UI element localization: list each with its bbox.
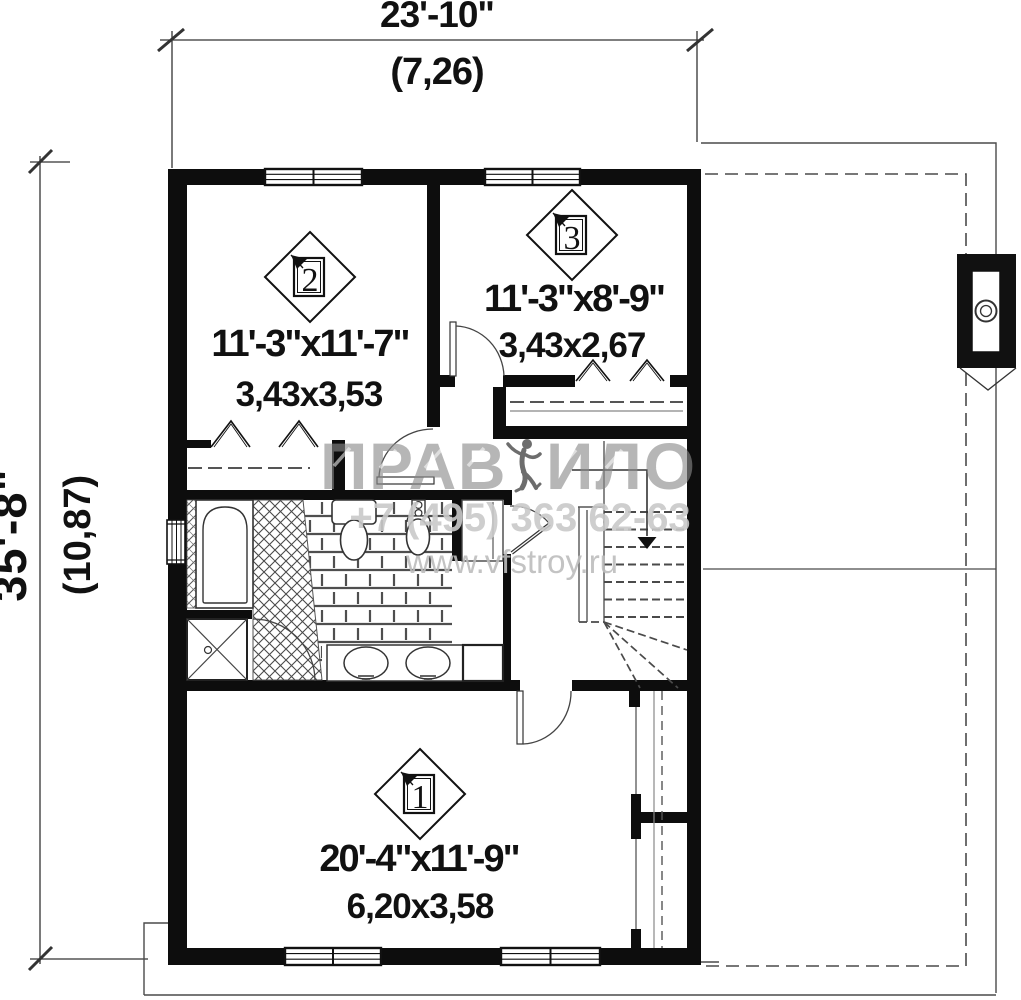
svg-text:1: 1 [412, 779, 429, 816]
svg-text:+7 (495) 363 62-63: +7 (495) 363 62-63 [349, 496, 690, 540]
svg-text:35'-8": 35'-8" [0, 468, 36, 602]
svg-text:ИЛО: ИЛО [546, 429, 697, 503]
svg-text:23'-10": 23'-10" [380, 0, 494, 35]
svg-text:3,43x3,53: 3,43x3,53 [236, 375, 383, 414]
svg-text:3,43x2,67: 3,43x2,67 [499, 326, 646, 365]
svg-text:3: 3 [564, 220, 581, 257]
svg-text:20'-4"x11'-9": 20'-4"x11'-9" [319, 838, 518, 880]
svg-text:ПРАВ: ПРАВ [320, 429, 507, 503]
svg-text:6,20x3,58: 6,20x3,58 [347, 887, 494, 926]
svg-text:11'-3"x8'-9": 11'-3"x8'-9" [484, 278, 664, 320]
svg-text:11'-3"x11'-7": 11'-3"x11'-7" [211, 323, 408, 365]
svg-text:(10,87): (10,87) [57, 475, 99, 595]
svg-text:2: 2 [302, 262, 319, 299]
svg-text:www.vfstroy.ru: www.vfstroy.ru [405, 543, 618, 580]
svg-text:(7,26): (7,26) [390, 51, 483, 93]
